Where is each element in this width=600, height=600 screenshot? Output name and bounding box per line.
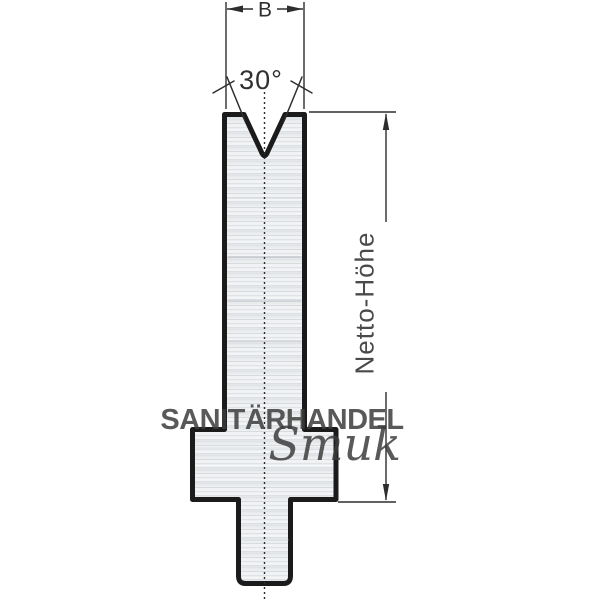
watermark-brand-script: Smuk [268, 417, 401, 471]
arrowhead-up [383, 113, 389, 130]
technical-drawing: B 30° Netto-Höhe SANITÄRHANDEL Smuk [0, 0, 600, 600]
arrowhead-down [383, 484, 389, 501]
height-dimension-label: Netto-Höhe [350, 232, 380, 375]
angle-label: 30° [239, 65, 283, 95]
width-dimension-label: B [258, 0, 272, 22]
arrowhead-right [287, 6, 303, 13]
angle-tick-right [291, 81, 312, 93]
drawing-canvas: B 30° Netto-Höhe SANITÄRHANDEL Smuk [0, 0, 600, 600]
arrowhead-left [227, 6, 243, 13]
